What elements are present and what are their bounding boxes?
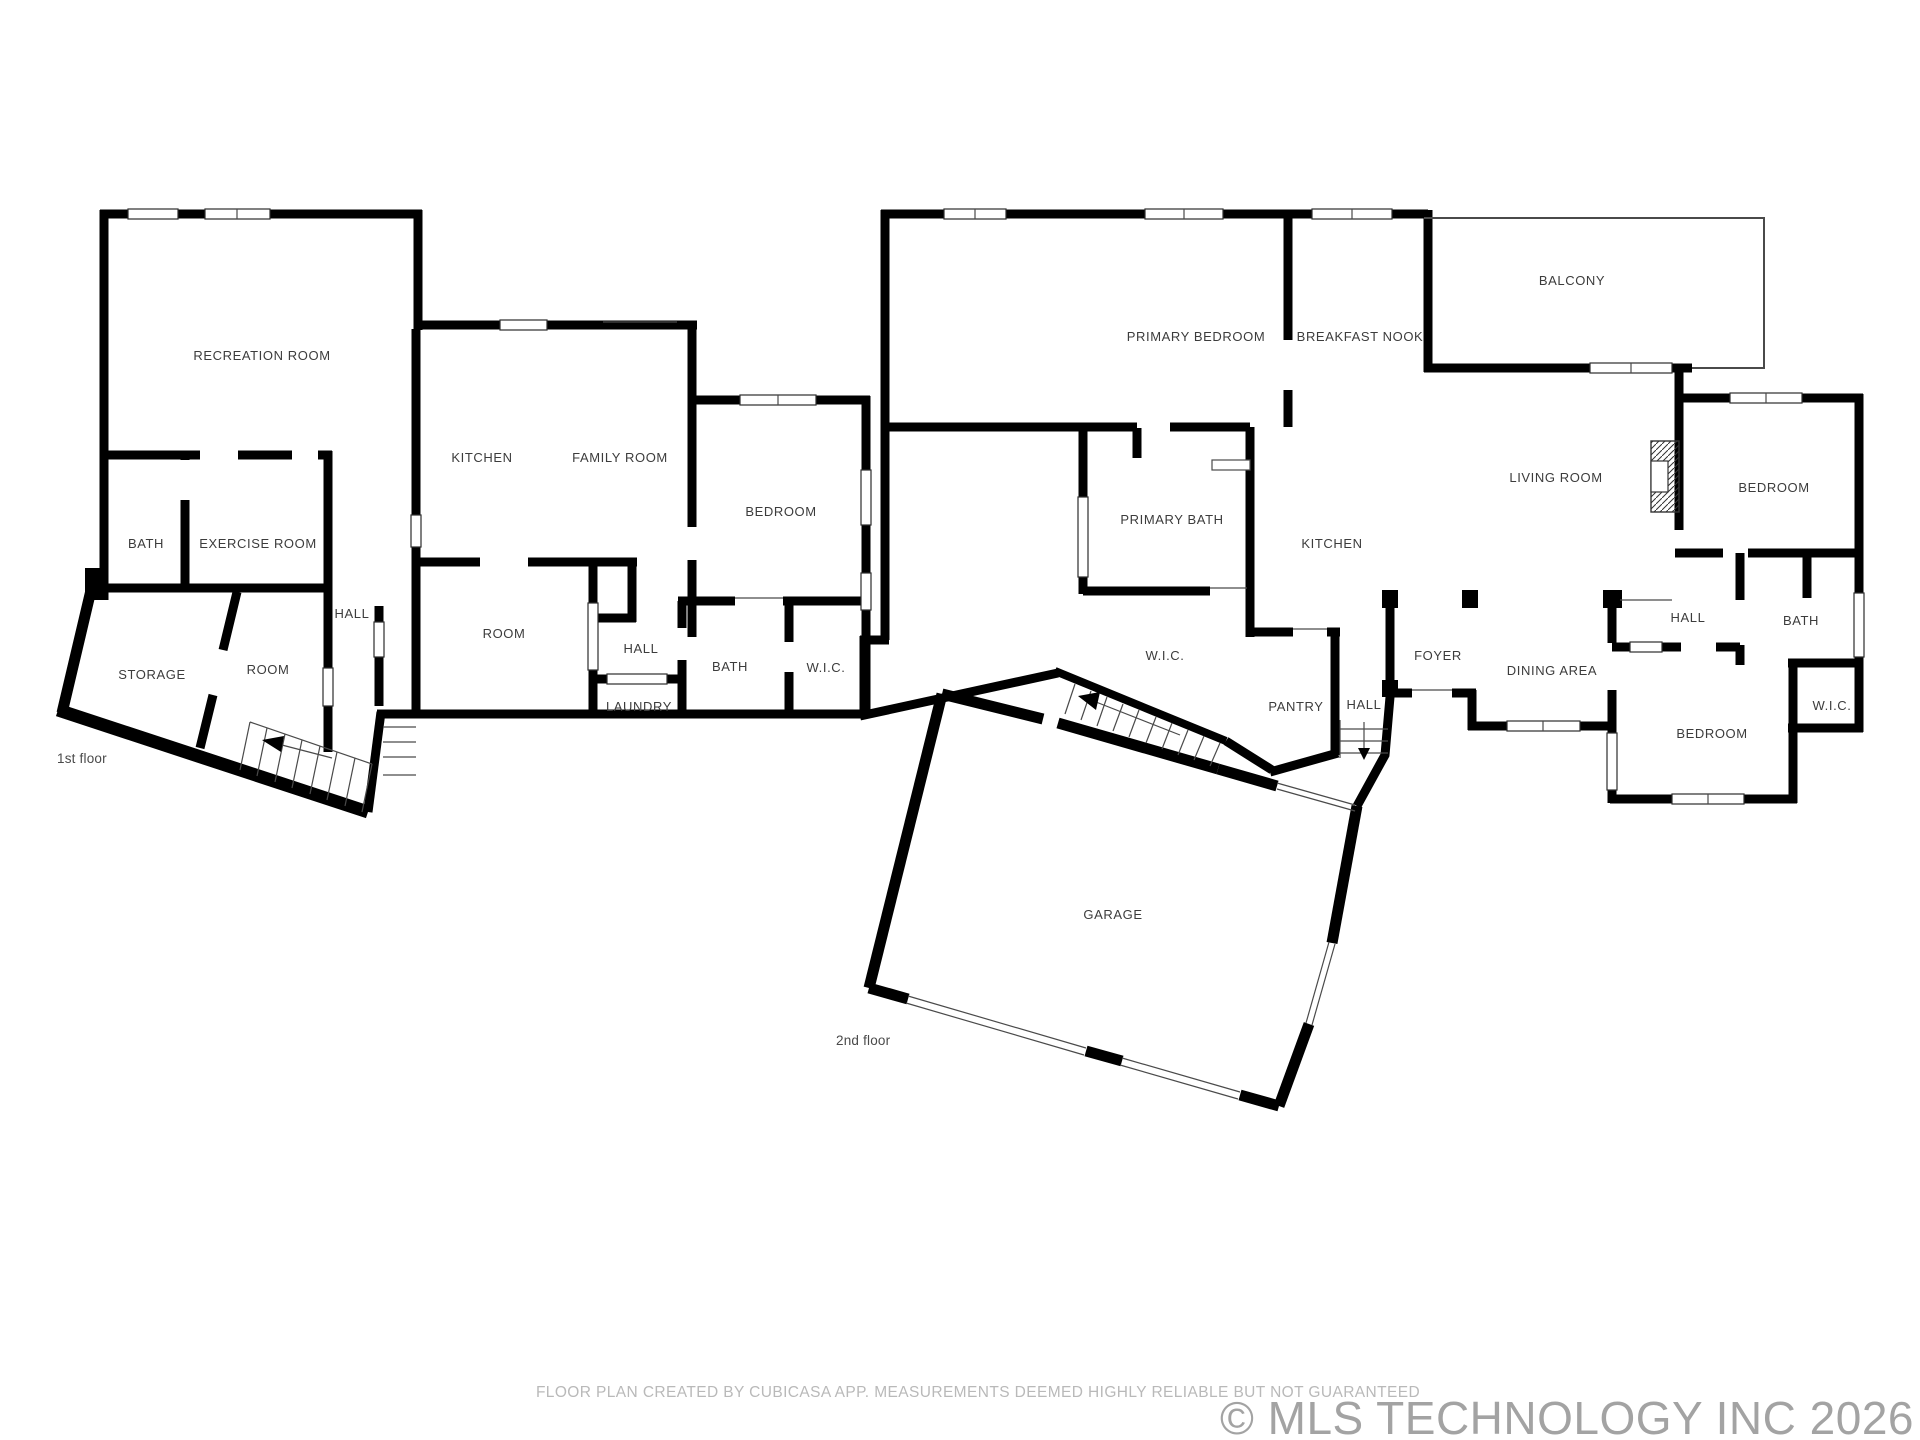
floor-caption-2nd: 2nd floor (836, 1033, 891, 1048)
floor-plan-canvas: RECREATION ROOM KITCHEN FAMILY ROOM BATH… (0, 0, 1920, 1440)
room-label-wic-2f-left: W.I.C. (1146, 648, 1185, 663)
room-label-bath-1f: BATH (128, 536, 164, 551)
second-floor-windows (944, 209, 1864, 804)
room-label-bedroom-2f-right: BEDROOM (1738, 480, 1809, 495)
first-floor-plan: RECREATION ROOM KITCHEN FAMILY ROOM BATH… (57, 209, 871, 812)
room-label-living-room: LIVING ROOM (1509, 470, 1602, 485)
room-label-laundry: LAUNDRY (606, 699, 672, 714)
room-label-garage: GARAGE (1083, 907, 1142, 922)
room-label-room-bottom-left: ROOM (247, 662, 290, 677)
room-label-family-room: FAMILY ROOM (572, 450, 668, 465)
stairs-direction-arrow (1078, 692, 1100, 710)
room-label-primary-bedroom: PRIMARY BEDROOM (1127, 329, 1266, 344)
room-label-hall-1f-a: HALL (335, 606, 370, 621)
room-label-hall-1f-b: HALL (624, 641, 659, 656)
room-label-balcony: BALCONY (1539, 273, 1605, 288)
room-label-bath-1f-b: BATH (712, 659, 748, 674)
room-label-exercise-room: EXERCISE ROOM (199, 536, 317, 551)
room-label-storage: STORAGE (118, 667, 186, 682)
floor-plan-page: RECREATION ROOM KITCHEN FAMILY ROOM BATH… (0, 0, 1920, 1440)
room-label-hall-2f-center: HALL (1347, 697, 1382, 712)
footer: FLOOR PLAN CREATED BY CUBICASA APP. MEAS… (536, 1384, 1914, 1440)
stairs-down-arrow (1358, 748, 1370, 760)
watermark-text: © MLS TECHNOLOGY INC 2026 (1220, 1392, 1914, 1440)
first-floor-labels: RECREATION ROOM KITCHEN FAMILY ROOM BATH… (57, 348, 846, 766)
second-floor-labels: PRIMARY BEDROOM BREAKFAST NOOK BALCONY L… (836, 273, 1852, 1048)
room-label-room-center: ROOM (483, 626, 526, 641)
room-label-foyer: FOYER (1414, 648, 1462, 663)
second-floor-walls (860, 210, 1863, 1106)
fireplace-icon (1651, 441, 1679, 512)
room-label-breakfast-nook: BREAKFAST NOOK (1297, 329, 1424, 344)
room-label-primary-bath: PRIMARY BATH (1120, 512, 1223, 527)
room-label-recreation-room: RECREATION ROOM (193, 348, 330, 363)
garage-walls (869, 694, 1357, 1106)
room-label-bedroom-1f: BEDROOM (745, 504, 816, 519)
room-label-kitchen-1f: KITCHEN (451, 450, 512, 465)
room-label-dining-area: DINING AREA (1507, 663, 1597, 678)
room-label-pantry: PANTRY (1268, 699, 1323, 714)
floor-caption-1st: 1st floor (57, 751, 107, 766)
room-label-hall-2f-right: HALL (1671, 610, 1706, 625)
room-label-wic-1f: W.I.C. (807, 660, 846, 675)
room-label-kitchen-2f: KITCHEN (1301, 536, 1362, 551)
room-label-wic-2f-right: W.I.C. (1813, 698, 1852, 713)
second-floor-plan: PRIMARY BEDROOM BREAKFAST NOOK BALCONY L… (836, 209, 1864, 1106)
room-label-bath-2f: BATH (1783, 613, 1819, 628)
room-label-bedroom-2f-bottom: BEDROOM (1676, 726, 1747, 741)
